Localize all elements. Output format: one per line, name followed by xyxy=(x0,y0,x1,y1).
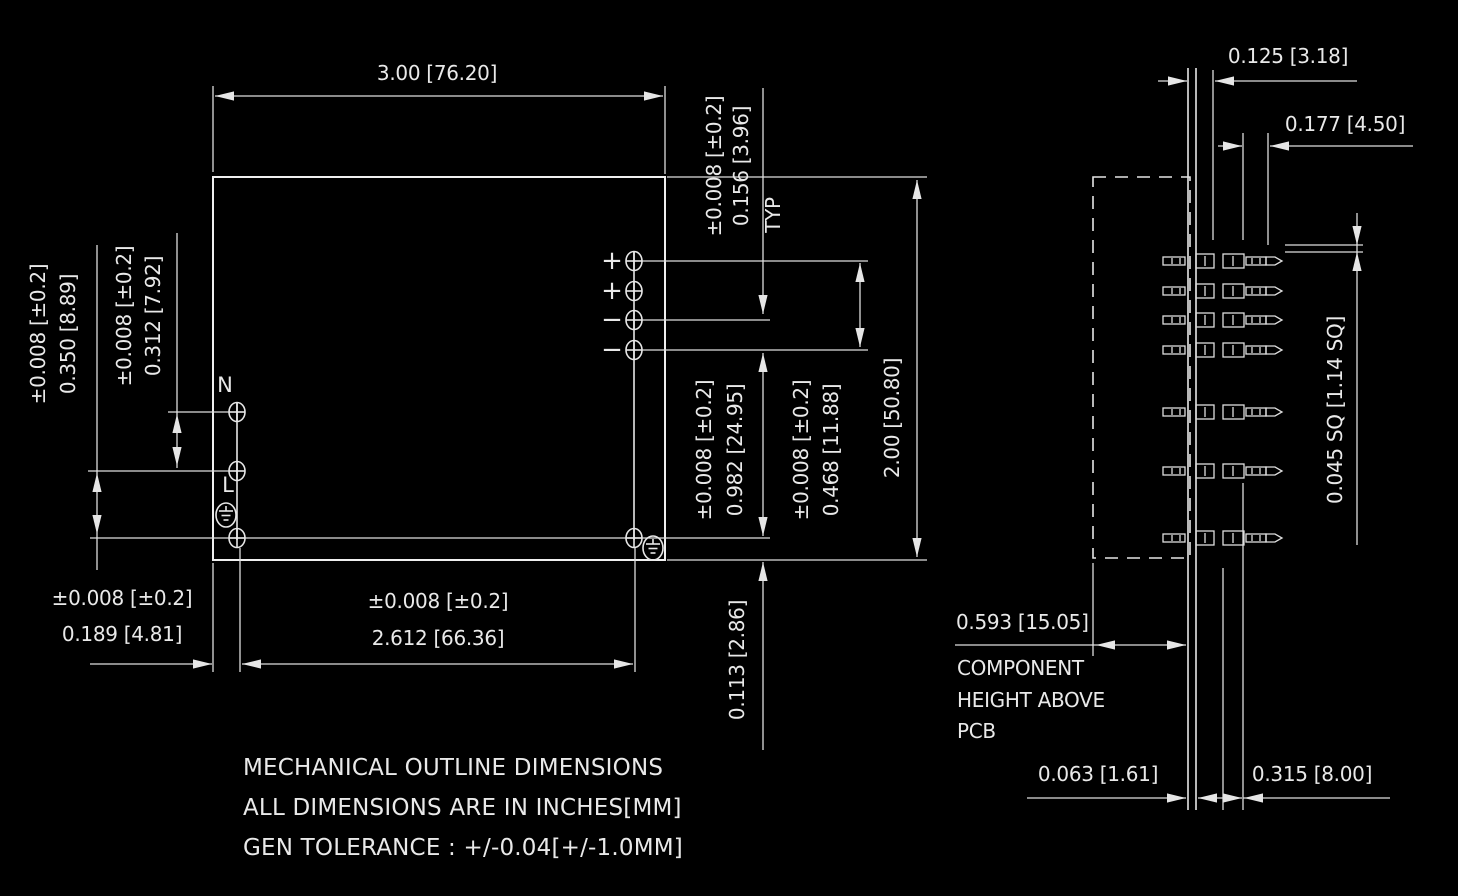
earth-ground-icons xyxy=(216,503,663,560)
dim-0063: 0.063 [1.61] xyxy=(1038,762,1158,786)
dim-0468: 0.468 [11.88] xyxy=(819,384,843,517)
tol-0468: ±0.008 [±0.2] xyxy=(789,380,813,521)
dim-pin-square: 0.045 SQ [1.14 SQ] xyxy=(1323,316,1347,504)
dim-0177: 0.177 [4.50] xyxy=(1285,112,1405,136)
pin-label-plus-1: + xyxy=(601,246,623,276)
pin-label-plus-2: + xyxy=(601,276,623,306)
pin-target-icon xyxy=(626,311,642,330)
earth-ground-icon xyxy=(643,536,663,560)
drawing-canvas: 3.00 [76.20] ±0.008 [±0.2] 0.156 [3.96] … xyxy=(0,0,1458,896)
component-height-note-line1: COMPONENT xyxy=(957,656,1085,680)
side-view-pin xyxy=(1163,254,1282,268)
side-view-pin xyxy=(1163,464,1282,478)
tol-pin-pitch: ±0.008 [±0.2] xyxy=(702,96,726,237)
pin-target-icon xyxy=(229,529,245,548)
pin-target-icon xyxy=(626,341,642,360)
dim-0315: 0.315 [8.00] xyxy=(1252,762,1372,786)
dim-0113: 0.113 [2.86] xyxy=(725,600,749,720)
front-view-body-outline xyxy=(213,177,665,560)
pin-target-icon xyxy=(229,403,245,422)
dim-pin-pitch: 0.156 [3.96] xyxy=(729,106,753,226)
dim-0189: 0.189 [4.81] xyxy=(62,622,182,646)
earth-ground-icon xyxy=(216,503,236,527)
dim-0350: 0.350 [8.89] xyxy=(56,274,80,394)
tol-0982: ±0.008 [±0.2] xyxy=(692,380,716,521)
note-tolerance: GEN TOLERANCE : +/-0.04[+/-1.0MM] xyxy=(243,835,683,861)
side-view-pin xyxy=(1163,343,1282,357)
pin-target-icon xyxy=(626,529,642,548)
dim-0982: 0.982 [24.95] xyxy=(723,384,747,517)
side-view-body-outline xyxy=(1093,177,1190,558)
component-height-note-line3: PCB xyxy=(957,719,996,743)
pin-label-minus-1: − xyxy=(601,305,623,335)
side-view-pin xyxy=(1163,405,1282,419)
tol-0312: ±0.008 [±0.2] xyxy=(112,246,136,387)
tol-0350: ±0.008 [±0.2] xyxy=(26,264,50,405)
dim-overall-height: 2.00 [50.80] xyxy=(880,358,904,478)
pin-label-neutral: N xyxy=(217,373,233,397)
note-units: ALL DIMENSIONS ARE IN INCHES[MM] xyxy=(243,795,682,821)
dim-overall-width: 3.00 [76.20] xyxy=(377,61,497,85)
note-title: MECHANICAL OUTLINE DIMENSIONS xyxy=(243,755,663,781)
typ-label: TYP xyxy=(761,197,785,234)
tol-2612: ±0.008 [±0.2] xyxy=(368,589,509,613)
dim-2612: 2.612 [66.36] xyxy=(372,626,505,650)
dim-0312: 0.312 [7.92] xyxy=(141,256,165,376)
dim-component-height: 0.593 [15.05] xyxy=(956,610,1089,634)
side-view-pin xyxy=(1163,531,1282,545)
pin-target-icon xyxy=(626,282,642,301)
component-height-note-line2: HEIGHT ABOVE xyxy=(957,688,1105,712)
side-view-pin xyxy=(1163,313,1282,327)
pin-label-line: L xyxy=(222,473,234,497)
pin-label-minus-2: − xyxy=(601,335,623,365)
side-view-pin xyxy=(1163,284,1282,298)
tol-0189: ±0.008 [±0.2] xyxy=(52,586,193,610)
front-view-pins xyxy=(229,252,642,548)
mechanical-outline-svg: 3.00 [76.20] ±0.008 [±0.2] 0.156 [3.96] … xyxy=(0,0,1458,896)
side-view-pins xyxy=(1163,254,1282,545)
pin-target-icon xyxy=(626,252,642,271)
dim-0125: 0.125 [3.18] xyxy=(1228,44,1348,68)
